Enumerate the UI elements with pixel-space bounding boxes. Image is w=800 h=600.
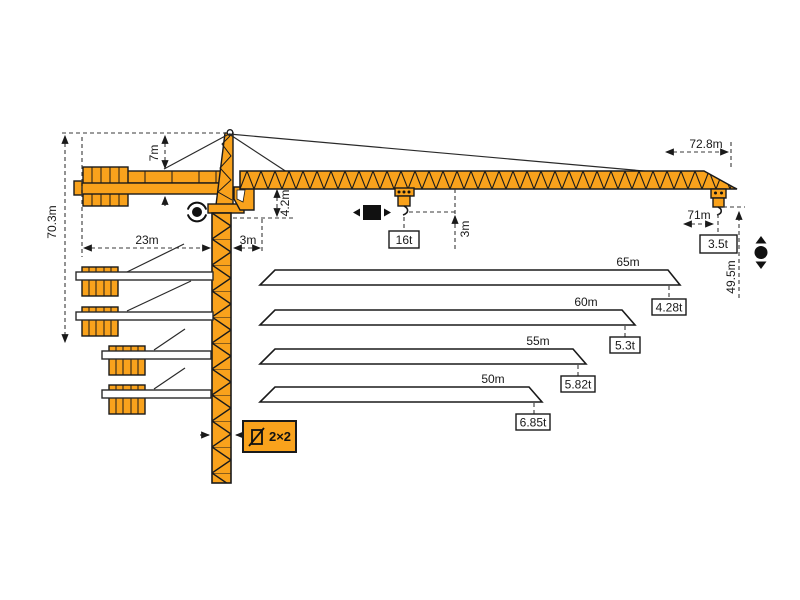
tower-top-height-label: 4.2m	[278, 190, 292, 217]
trolley-arrow-left	[353, 209, 360, 217]
motion-symbols: 2×2	[188, 203, 767, 452]
trolley-arrow-right	[384, 209, 391, 217]
diagram-canvas: 70.3m 7m 23m 3m 4.2m 16t	[0, 0, 800, 600]
jib-lattice	[240, 171, 737, 189]
jib-option-capacity-label: 4.28t	[656, 301, 683, 315]
tip-trolley-frame	[711, 189, 726, 198]
max-capacity-label: 16t	[396, 233, 413, 247]
jib-option-bar	[260, 349, 586, 364]
slewing-icon	[188, 203, 206, 222]
max-radius-label: 72.8m	[689, 137, 722, 151]
tip-pulley	[720, 192, 723, 195]
cw-leader	[154, 329, 185, 350]
mast-section-icon	[249, 428, 264, 446]
tip-capacity-label: 3.5t	[708, 237, 729, 251]
jib-option-capacity-label: 6.85t	[520, 416, 547, 430]
mast-lattice	[212, 213, 231, 483]
front-pendant-long	[229, 134, 678, 174]
tip-hook	[717, 207, 721, 215]
tip-trolley	[711, 189, 726, 215]
pendant-lines	[164, 134, 678, 176]
cw-leader	[127, 281, 191, 311]
tip-hook-block	[713, 198, 724, 207]
crane-hook	[403, 206, 408, 215]
crane-spec-diagram: 70.3m 7m 23m 3m 4.2m 16t	[0, 0, 800, 600]
hook-height-label: 49.5m	[724, 260, 738, 293]
hook-offset-label: 3m	[458, 221, 472, 238]
counter-jib-beam	[76, 183, 232, 194]
tower-head-height-label: 7m	[147, 145, 161, 162]
counter-jib-railing	[118, 171, 232, 183]
dim-tip-radius: 71m	[684, 207, 745, 235]
beam-end-cap	[74, 181, 82, 195]
cw-bar	[76, 312, 213, 320]
jib-option-length-label: 50m	[481, 372, 504, 386]
jib-option-bar	[260, 310, 635, 325]
trolley-square	[363, 205, 381, 220]
slewing-dot	[192, 207, 202, 217]
jib-length-options: 65m 4.28t 60m 5.3t 55m 5.82t 50m 6.8	[260, 255, 686, 430]
jib-option-capacity-label: 5.3t	[615, 339, 636, 353]
jib-option-50m: 50m 6.85t	[260, 372, 550, 430]
cw-leader	[154, 368, 185, 389]
jib-option-55m: 55m 5.82t	[260, 334, 595, 392]
counterweight-option-1	[76, 244, 213, 296]
hoist-arrow-down	[756, 262, 767, 270]
cw-bar	[102, 390, 211, 398]
hoisting-icon	[755, 236, 768, 269]
dim-max-radius: 72.8m	[666, 137, 731, 170]
dim-hook-height: 49.5m	[724, 212, 739, 298]
tip-hook-radius-label: 71m	[687, 208, 710, 222]
hoist-arrow-up	[756, 236, 767, 244]
front-pendant-short	[229, 134, 293, 176]
jib-option-bar	[260, 387, 542, 402]
jib-option-capacity-label: 5.82t	[565, 378, 592, 392]
hook-block	[398, 196, 410, 206]
main-trolley	[395, 188, 414, 215]
main-jib	[240, 171, 737, 189]
jib-option-bar	[260, 270, 680, 285]
cw-bar	[76, 272, 213, 280]
max-capacity-callout: 16t	[389, 217, 419, 248]
dim-counter-jib: 23m	[84, 233, 210, 248]
crane-structure	[74, 130, 737, 483]
slew-offset-label: 3m	[240, 233, 257, 247]
tower-head-column	[216, 133, 233, 205]
tip-capacity-callout: 3.5t	[700, 235, 737, 253]
counterweight-options	[76, 244, 213, 414]
trolley-pulley	[403, 191, 406, 194]
jib-option-length-label: 55m	[526, 334, 549, 348]
rear-pendant	[164, 134, 229, 169]
overall-height-label: 70.3m	[45, 205, 59, 238]
jib-option-60m: 60m 5.3t	[260, 295, 640, 353]
jib-option-length-label: 65m	[616, 255, 639, 269]
counter-jib	[74, 167, 232, 206]
trolley-travel-icon	[353, 205, 391, 220]
mast-section-label: 2×2	[269, 429, 291, 444]
trolley-pulley	[408, 191, 411, 194]
dim-slew-offset: 3m	[234, 219, 262, 253]
jib-option-65m: 65m 4.28t	[260, 255, 686, 315]
hoist-dot	[755, 246, 768, 259]
tip-pulley	[714, 192, 717, 195]
cw-bar	[102, 351, 211, 359]
counter-jib-length-label: 23m	[135, 233, 158, 247]
tower-mast	[212, 213, 231, 483]
jib-option-length-label: 60m	[574, 295, 597, 309]
trolley-pulley	[398, 191, 401, 194]
